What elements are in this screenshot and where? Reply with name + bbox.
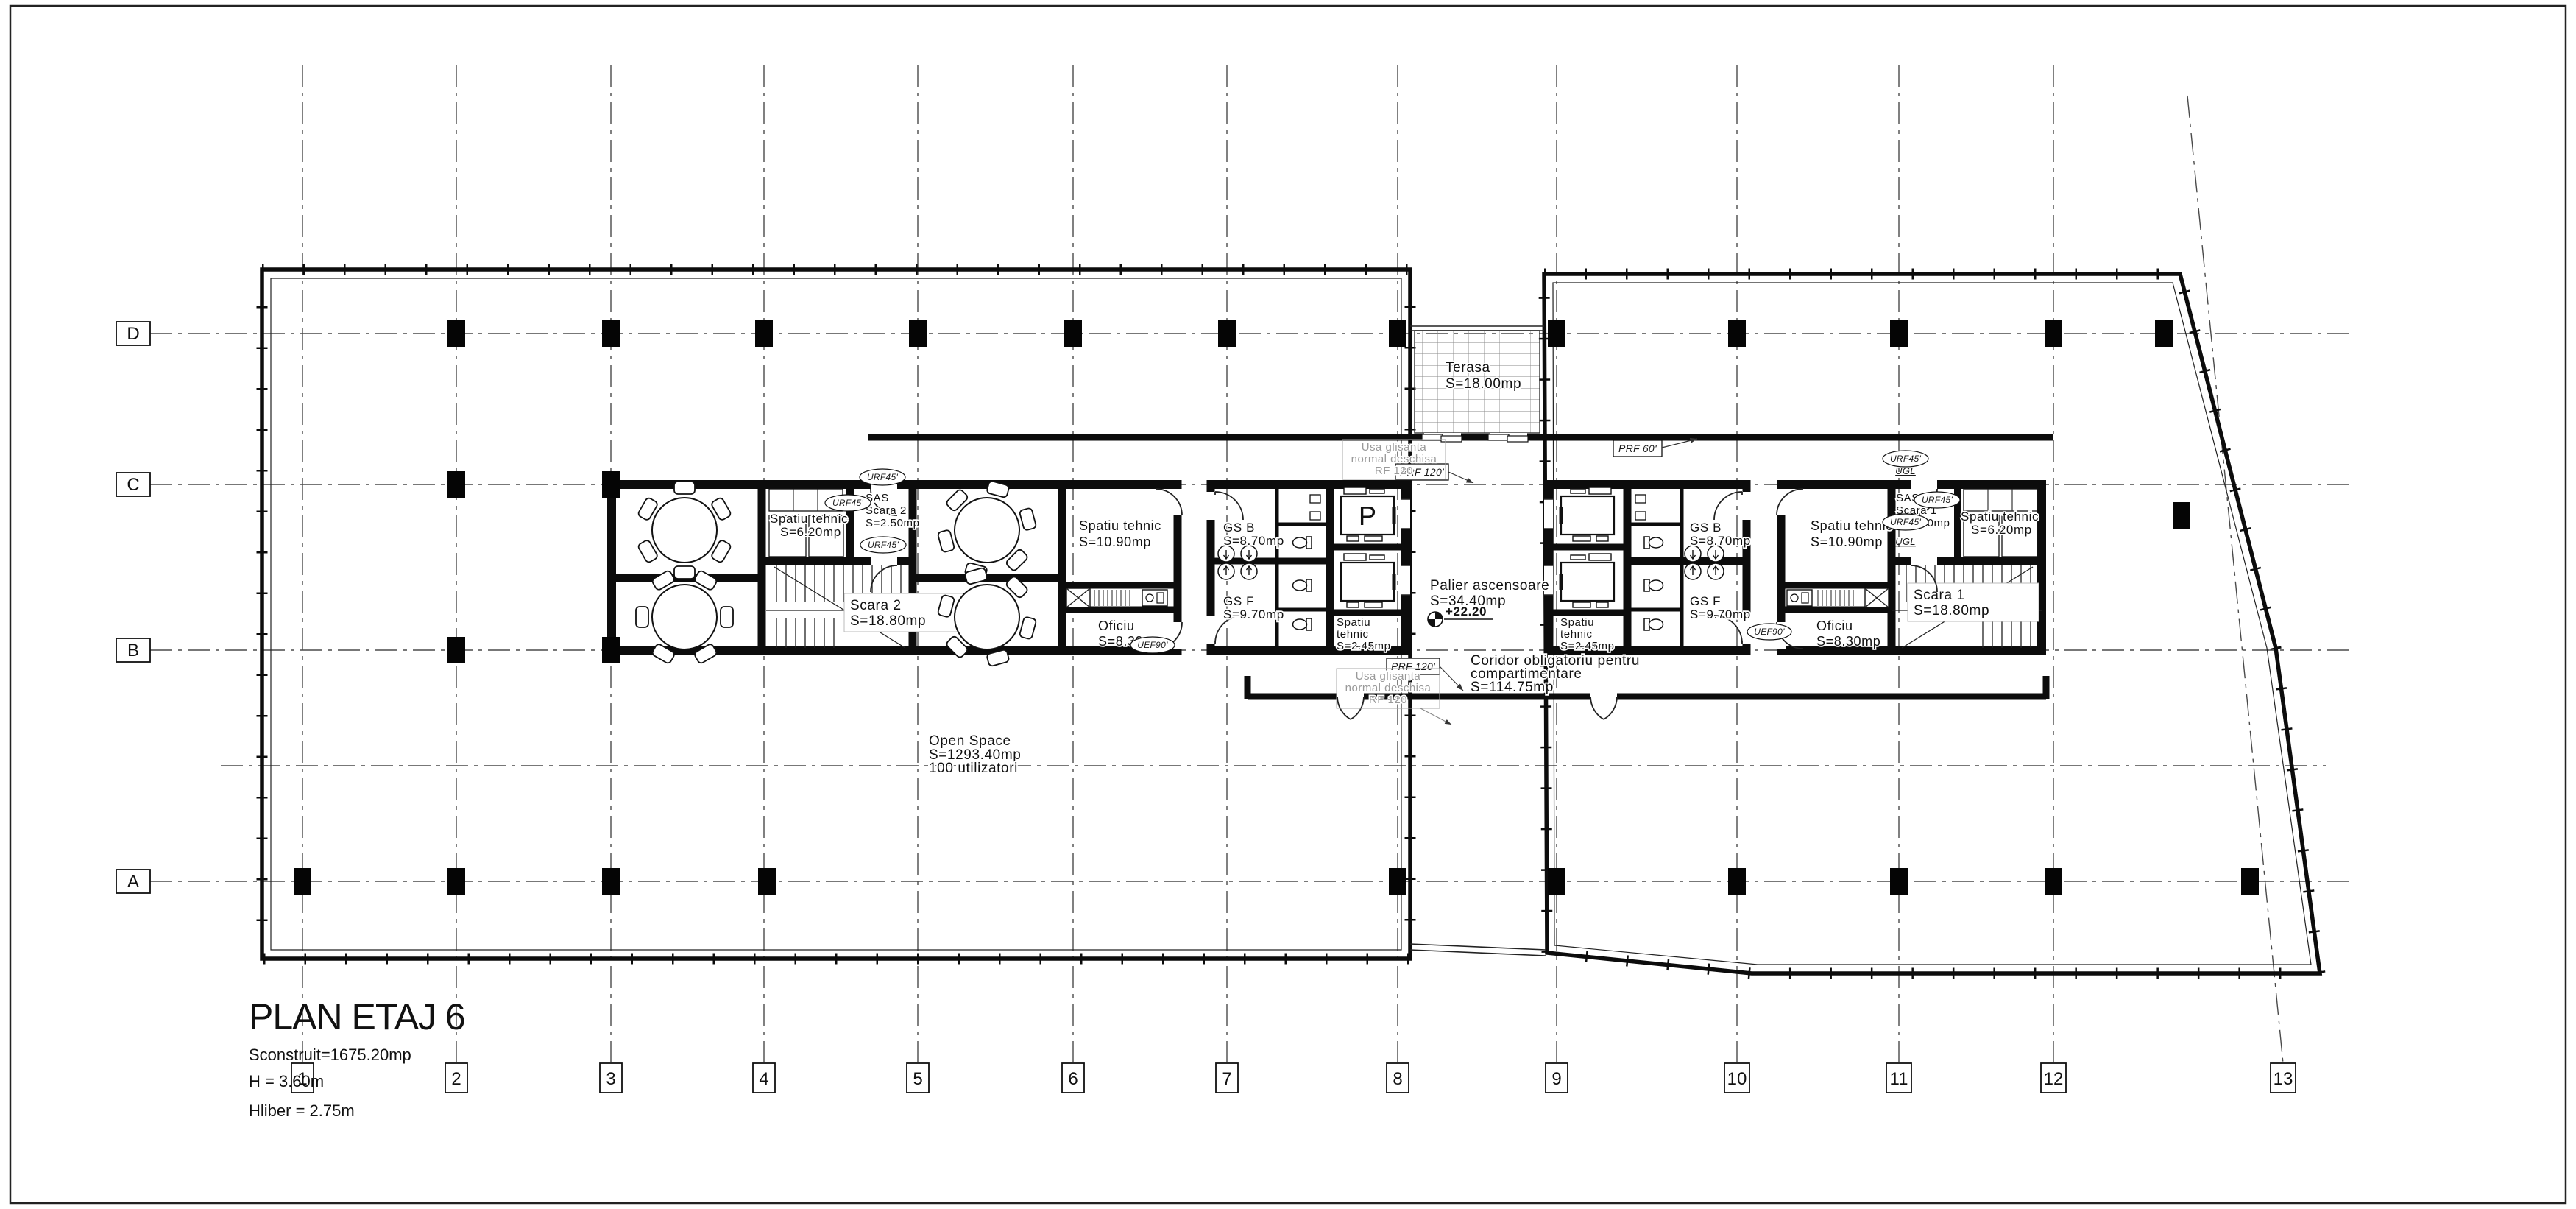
sas2-l2: Scara 2 — [866, 504, 907, 517]
uef90-tag: UEF90' — [1754, 627, 1785, 637]
floor-height: H = 3.60m — [249, 1072, 324, 1090]
grid-row-label: C — [127, 475, 139, 495]
urf45-tag: URF45' — [1922, 495, 1953, 505]
oficiu-left-name: Oficiu — [1098, 618, 1135, 633]
st1090-left-area: S=10.90mp — [1079, 535, 1151, 549]
scara2-name: Scara 2 — [850, 598, 902, 613]
grid-col-label: 7 — [1222, 1069, 1231, 1089]
st245-left-l1: Spatiu — [1337, 616, 1370, 629]
south-notch — [1410, 944, 1546, 956]
note-bottom-l1: Usa glisanta — [1356, 670, 1421, 683]
note-top-l3: RF 120 — [1375, 465, 1413, 477]
oficiu-right-area: S=8.30mp — [1816, 634, 1880, 649]
grid-col-label: 4 — [759, 1069, 768, 1089]
st1090-left-name: Spatiu tehnic — [1079, 518, 1161, 533]
gsb-right-name: GS B — [1690, 521, 1722, 535]
built-area: Sconstruit=1675.20mp — [249, 1046, 411, 1064]
urf45-tag: URF45' — [1890, 454, 1922, 464]
urf45-tag: URF45' — [832, 498, 864, 508]
grid-col-label: 10 — [1727, 1069, 1747, 1089]
uef90-tag: UEF90' — [1137, 640, 1168, 650]
gsf-left-name: GS F — [1223, 594, 1254, 608]
grid-row-label: D — [127, 324, 139, 344]
coridor-area: S=114.75mp — [1471, 680, 1554, 695]
gsf-left-area: S=9.70mp — [1223, 607, 1284, 621]
gsb-right-area: S=8.70mp — [1690, 534, 1751, 548]
note-top-l2: normal deschisa — [1351, 453, 1437, 465]
st245-right-l2: tehnic — [1560, 628, 1593, 641]
plan-title: PLAN ETAJ 6 — [249, 996, 465, 1037]
st620-left-name: Spatiu tehnic — [770, 512, 848, 526]
level-value: +22.20 — [1446, 604, 1487, 618]
urf45-tag: URF45' — [867, 472, 899, 482]
sas2-area: S=2.50mp — [866, 517, 920, 529]
scara2-area: S=18.80mp — [850, 613, 926, 629]
corridor-walls — [868, 437, 2053, 699]
grid-col-label: 2 — [451, 1069, 461, 1089]
grid-col-label: 6 — [1068, 1069, 1078, 1089]
st1090-right-name: Spatiu tehnic — [1811, 518, 1893, 533]
scara1-name: Scara 1 — [1914, 588, 1965, 603]
grid-col-label: 11 — [1890, 1069, 1908, 1089]
grid-col-label: 12 — [2044, 1069, 2064, 1089]
grid-col-label: 3 — [606, 1069, 615, 1089]
urf45-tag: URF45' — [868, 540, 899, 550]
grid-row-bubbles: D C B A — [116, 322, 150, 893]
note-bottom-l3: RF 120 — [1369, 694, 1407, 706]
st245-right-area: S=2.45mp — [1560, 640, 1615, 652]
open-space-capacity: 100 utilizatori — [929, 761, 1018, 776]
ugl-tag: UGL — [1895, 465, 1916, 476]
title-block: PLAN ETAJ 6 Sconstruit=1675.20mp H = 3.6… — [249, 996, 465, 1120]
kitchenette-right — [1787, 588, 1889, 607]
scara1-area: S=18.80mp — [1914, 603, 1989, 618]
oficiu-right-name: Oficiu — [1816, 618, 1853, 633]
grid-col-label: 8 — [1393, 1069, 1402, 1089]
terasa-name: Terasa — [1446, 360, 1490, 376]
grid-row-label: B — [127, 641, 139, 660]
gsb-left-name: GS B — [1223, 521, 1255, 535]
palier-name: Palier ascensoare — [1430, 578, 1549, 593]
clear-height: Hliber = 2.75m — [249, 1102, 355, 1120]
st620-left-area: S=6.20mp — [780, 525, 841, 539]
st245-left-l2: tehnic — [1337, 628, 1369, 641]
kitchenette-left — [1066, 588, 1167, 607]
ugl-tag: UGL — [1895, 536, 1916, 547]
gsb-left-area: S=8.70mp — [1223, 534, 1284, 548]
grid-col-bubbles: 1 2 3 4 5 6 7 8 9 10 11 12 13 — [291, 1063, 2296, 1093]
grid-col-label: 9 — [1551, 1069, 1561, 1089]
terasa: Terasa S=18.00mp — [1410, 326, 1544, 433]
fire-elevator-label: P — [1359, 501, 1376, 531]
stair-scara-1: Scara 1 S=18.80mp — [1892, 565, 2042, 648]
note-bottom-l2: normal deschisa — [1345, 682, 1432, 694]
st620-right-name: Spatiu tehnic — [1961, 510, 2039, 524]
st245-left-area: S=2.45mp — [1337, 640, 1391, 652]
note-top-l1: Usa glisanta — [1362, 441, 1427, 454]
drawing-sheet: Terasa S=18.00mp — [0, 0, 2576, 1209]
grid-col-label: 13 — [2274, 1069, 2293, 1089]
urf45-tag: URF45' — [1890, 517, 1922, 527]
gsf-right-area: S=9.70mp — [1690, 607, 1751, 621]
st1090-right-area: S=10.90mp — [1811, 535, 1883, 549]
st620-right-area: S=6.20mp — [1971, 523, 2032, 537]
st245-right-l1: Spatiu — [1560, 616, 1594, 629]
grid-row-label: A — [127, 872, 139, 892]
prf60-tag: PRF 60' — [1618, 443, 1657, 454]
terasa-area: S=18.00mp — [1446, 376, 1521, 392]
gsf-right-name: GS F — [1690, 594, 1721, 608]
grid-col-label: 5 — [913, 1069, 922, 1089]
open-space-name: Open Space — [929, 733, 1011, 749]
